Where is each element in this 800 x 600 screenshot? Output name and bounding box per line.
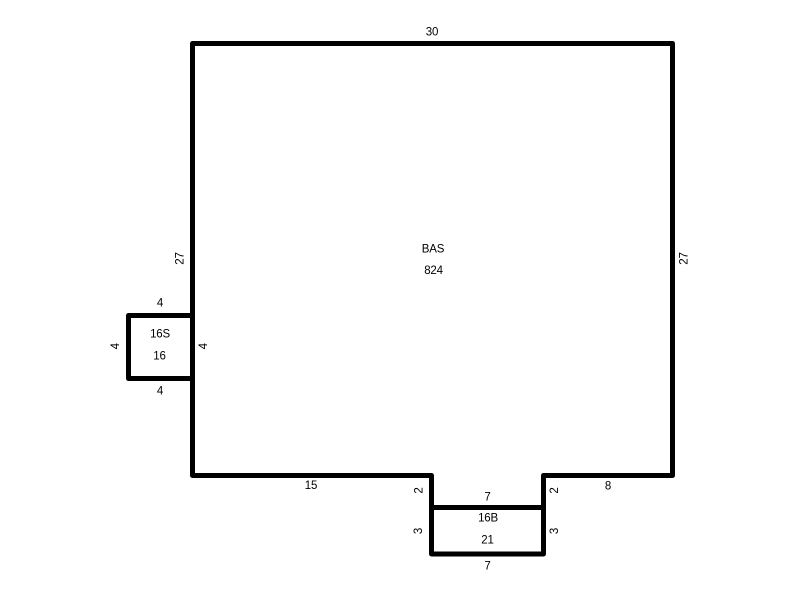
svg-text:4: 4	[198, 342, 210, 349]
svg-text:27: 27	[679, 252, 691, 264]
svg-text:16S: 16S	[150, 329, 170, 341]
svg-text:27: 27	[175, 252, 187, 264]
svg-text:21: 21	[481, 535, 493, 547]
svg-text:16B: 16B	[478, 513, 498, 525]
svg-text:BAS: BAS	[422, 244, 445, 256]
svg-text:3: 3	[413, 528, 425, 534]
svg-text:7: 7	[484, 492, 490, 504]
svg-text:15: 15	[305, 480, 317, 492]
svg-text:30: 30	[426, 27, 438, 39]
svg-text:4: 4	[157, 386, 164, 398]
svg-text:4: 4	[110, 342, 122, 349]
svg-text:3: 3	[549, 528, 561, 534]
svg-text:2: 2	[414, 487, 426, 493]
svg-text:8: 8	[605, 481, 611, 493]
svg-text:824: 824	[424, 265, 443, 277]
svg-text:7: 7	[484, 561, 490, 573]
svg-text:16: 16	[153, 351, 165, 363]
svg-text:4: 4	[157, 298, 164, 310]
svg-text:2: 2	[549, 487, 561, 493]
